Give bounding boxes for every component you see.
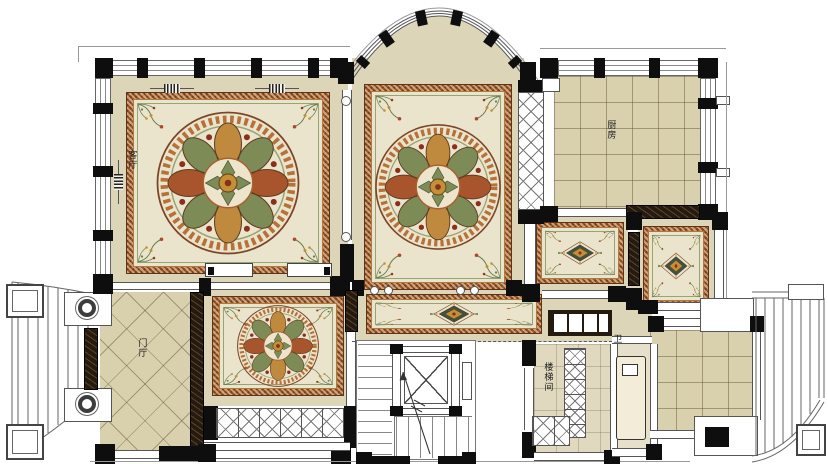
drawing-primitive [250, 355, 253, 358]
drawing-primitive [545, 265, 560, 275]
wall-segment [534, 452, 610, 461]
wall-segment [346, 332, 356, 408]
drawing-primitive [470, 313, 472, 315]
drawing-primitive [692, 294, 693, 296]
round-column-icon [78, 395, 96, 413]
window-post [93, 103, 113, 114]
drawing-primitive [388, 305, 391, 306]
column-base-icon [456, 286, 465, 295]
drawing-primitive [600, 265, 615, 275]
living-room-label: 客厅 [127, 150, 137, 170]
rug-field [133, 99, 323, 267]
stairwell-label: 楼梯间 [543, 362, 553, 392]
wall-post [93, 274, 113, 294]
drawing-primitive [545, 231, 550, 237]
wall-post [198, 444, 216, 462]
drawing-primitive [411, 406, 422, 412]
entry-floor [100, 292, 190, 450]
window-post [93, 166, 113, 177]
window-post [308, 58, 319, 78]
round-column-icon [78, 299, 96, 317]
drawing-primitive [658, 294, 659, 296]
floral-sprig-icon [504, 302, 534, 310]
drawing-primitive [145, 117, 148, 120]
dining-south-lattice-window [216, 408, 344, 438]
drawing-primitive [452, 312, 455, 315]
rear-landing [700, 298, 754, 332]
drawing-primitive [655, 243, 656, 245]
drawing-primitive [145, 246, 148, 249]
drawing-primitive [452, 225, 457, 230]
drawing-primitive [287, 318, 290, 321]
floral-sprig-icon [374, 250, 404, 280]
wall-post [712, 212, 728, 230]
threshold-marble [628, 232, 640, 286]
drawing-primitive [141, 255, 143, 257]
drawing-primitive [655, 287, 656, 289]
drawing-primitive [323, 373, 325, 375]
wall-segment [113, 282, 201, 290]
drawing-primitive [419, 144, 424, 149]
drawing-primitive [492, 264, 500, 278]
drawing-primitive [675, 254, 676, 256]
drawing-primitive [435, 184, 441, 190]
cabinet-end [208, 267, 214, 275]
drawing-primitive [383, 109, 386, 112]
eave-line [78, 46, 350, 47]
drawing-primitive [662, 248, 664, 250]
window-post [698, 98, 718, 109]
column-base-icon [384, 286, 393, 295]
bath-label: 卫 [612, 334, 622, 344]
drawing-primitive [304, 114, 307, 117]
closet-a-rug [536, 222, 624, 284]
drawing-primitive [657, 241, 658, 243]
drawing-primitive [475, 253, 479, 257]
drawing-primitive [287, 371, 290, 374]
wall-segment [558, 208, 628, 217]
drawing-primitive [383, 321, 386, 322]
drawing-primitive [474, 313, 478, 315]
drawing-primitive [138, 248, 146, 262]
column-base-icon [341, 232, 351, 242]
drawing-primitive [691, 265, 694, 267]
drawing-primitive [403, 372, 430, 454]
stairwell-floor-hatch [532, 416, 570, 446]
drawing-primitive [476, 201, 481, 206]
drawing-primitive [490, 262, 493, 265]
drawing-primitive [475, 117, 479, 121]
drawing-primitive [552, 235, 554, 236]
drawing-primitive [495, 271, 497, 273]
wall-post [462, 452, 476, 464]
drawing-primitive [327, 380, 329, 382]
drawing-primitive [308, 246, 311, 249]
wall-post [95, 58, 113, 78]
drawing-primitive [388, 106, 391, 109]
wall-segment [342, 90, 352, 240]
column-base-icon [370, 286, 379, 295]
drawing-primitive [453, 323, 455, 325]
eave-line [78, 46, 79, 62]
drawing-primitive [578, 251, 581, 254]
cabinet-symbol [205, 263, 253, 277]
wall-post [646, 444, 662, 460]
wall-post [518, 80, 544, 92]
drawing-primitive [231, 373, 233, 375]
wall-post [522, 284, 540, 302]
drawing-primitive [271, 199, 277, 205]
drawing-primitive [414, 400, 425, 406]
drawing-primitive [430, 313, 434, 315]
wall-post [648, 316, 664, 332]
floral-sprig-icon [472, 94, 502, 124]
kitchen-counter-symbol [542, 78, 560, 92]
drawing-primitive [600, 231, 615, 241]
drawing-primitive [696, 287, 697, 289]
drawing-primitive [398, 117, 402, 121]
entry-label: 门厅 [137, 338, 147, 358]
drawing-primitive [696, 243, 697, 245]
window-post [698, 162, 718, 173]
drawing-primitive [395, 168, 400, 173]
drawing-primitive [383, 262, 386, 265]
drawing-primitive [689, 248, 691, 250]
drawing-primitive [391, 99, 394, 102]
wall-segment [658, 302, 700, 311]
wall-segment [213, 450, 331, 459]
rear-pillar-base [694, 416, 758, 456]
wall-segment [340, 244, 354, 282]
drawing-primitive [545, 265, 560, 275]
wall-segment [714, 230, 724, 298]
drawing-primitive [600, 265, 615, 275]
drawing-primitive [486, 265, 489, 268]
drawing-primitive [483, 273, 486, 276]
kitchen-north-window [558, 60, 700, 76]
drawing-primitive [303, 333, 306, 336]
kitchen-floor [554, 76, 702, 208]
wall-post [522, 340, 536, 366]
cabinet-end [324, 267, 330, 275]
drawing-primitive [675, 276, 676, 278]
drawing-primitive [606, 235, 608, 236]
drawing-primitive [554, 273, 556, 274]
drawing-primitive [662, 265, 663, 267]
drawing-primitive [224, 308, 232, 319]
drawing-primitive [653, 238, 654, 239]
window-post [251, 58, 262, 78]
drawing-primitive [612, 233, 613, 234]
drawing-primitive [522, 321, 525, 322]
threshold-marble [345, 290, 358, 332]
floral-sprig-icon [472, 250, 502, 280]
drawing-primitive [250, 333, 253, 336]
living-room-rug [126, 92, 330, 274]
wall-segment [368, 456, 410, 464]
drawing-primitive [490, 109, 493, 112]
drawing-primitive [495, 100, 497, 102]
drawing-primitive [522, 306, 525, 307]
drawing-primitive [694, 241, 695, 243]
drawing-primitive [609, 231, 614, 237]
drawing-primitive [698, 293, 699, 294]
drawing-primitive [507, 319, 511, 320]
drawing-primitive [657, 289, 658, 291]
drawing-primitive [308, 117, 311, 120]
drawing-primitive [324, 308, 332, 319]
floral-sprig-icon [374, 318, 404, 326]
floral-sprig-icon [374, 94, 404, 124]
rug-field [541, 227, 619, 279]
wall-post [608, 286, 626, 302]
corridor-runner-rug [366, 294, 542, 334]
drawing-primitive [304, 249, 307, 252]
eave-line [540, 48, 726, 49]
drawing-primitive [595, 252, 597, 254]
drawing-primitive [398, 308, 402, 309]
drawing-primitive [398, 253, 402, 257]
window-post [594, 58, 605, 78]
drawing-primitive [391, 303, 394, 304]
diamond-medallion-icon [558, 240, 602, 266]
floral-sprig-icon [688, 280, 701, 298]
drawing-primitive [558, 252, 562, 254]
drawing-primitive [653, 293, 654, 294]
wall-post [540, 58, 558, 78]
drawing-primitive [379, 100, 381, 102]
drawing-primitive [675, 264, 678, 268]
drawing-primitive [391, 324, 394, 325]
dining-rug [212, 296, 344, 396]
wall-segment [542, 290, 608, 299]
wall-post [698, 58, 718, 78]
drawing-primitive [383, 306, 386, 307]
diamond-medallion-icon [430, 301, 478, 327]
eave-line [726, 62, 727, 302]
drawing-primitive [688, 265, 689, 267]
rug-field [371, 299, 537, 329]
kitchen-label: 厨房 [606, 120, 616, 140]
drawing-primitive [244, 134, 250, 140]
drawing-primitive [400, 372, 408, 381]
wall-post [540, 206, 558, 222]
drawing-primitive [244, 226, 250, 232]
window-post [93, 230, 113, 241]
pillar-core [705, 427, 729, 447]
drawing-primitive [515, 303, 518, 304]
column-base-icon [470, 286, 479, 295]
drawing-primitive [276, 344, 280, 348]
drawing-primitive [379, 304, 381, 305]
rear-room-floor [650, 330, 756, 430]
closet-b-rug [643, 226, 709, 306]
floral-sprig-icon [504, 318, 534, 326]
drawing-primitive [527, 304, 529, 305]
window-sill [716, 96, 730, 105]
drawing-primitive [310, 248, 318, 262]
drawing-primitive [652, 235, 656, 244]
floor-plan-canvas: 客厅 厨房 门厅 楼梯间 卫 [0, 0, 828, 464]
drawing-primitive [658, 237, 659, 239]
drawing-primitive [579, 262, 581, 264]
east-pillar-south [796, 424, 826, 456]
floral-sprig-icon [651, 234, 664, 252]
drawing-primitive [515, 324, 518, 325]
drawing-primitive [486, 106, 489, 109]
window-sill [716, 168, 730, 177]
rug-field [648, 231, 704, 301]
west-pillar-south [6, 424, 44, 460]
drawing-primitive [327, 311, 329, 313]
drawing-primitive [600, 231, 615, 241]
drawing-primitive [658, 265, 661, 267]
drawing-primitive [698, 238, 699, 239]
drawing-primitive [271, 161, 277, 167]
wall-post [626, 212, 642, 230]
drawing-primitive [476, 168, 481, 173]
drawing-primitive [376, 264, 384, 278]
west-pillar-north [6, 284, 44, 318]
drawing-primitive [265, 318, 268, 321]
drawing-primitive [388, 265, 391, 268]
drawing-primitive [313, 255, 315, 257]
hall-rug [364, 84, 512, 290]
west-threshold-marble [84, 328, 98, 390]
drawing-primitive [598, 252, 602, 254]
drawing-primitive [379, 324, 381, 325]
hall-east-lattice-screen [518, 92, 544, 210]
drawing-primitive [518, 305, 521, 306]
drawing-primitive [452, 144, 457, 149]
wall-segment [204, 442, 350, 451]
drawing-primitive [303, 355, 306, 358]
drawing-primitive [689, 282, 691, 284]
drawing-primitive [310, 104, 318, 118]
drawing-primitive [313, 108, 315, 110]
drawing-primitive [179, 161, 185, 167]
arched-bay-window [338, 0, 540, 82]
drawing-primitive [652, 288, 656, 297]
drawing-primitive [693, 235, 700, 237]
rug-field [219, 303, 337, 389]
wall-segment [115, 450, 159, 459]
drawing-primitive [206, 134, 212, 140]
drawing-primitive [379, 271, 381, 273]
drawing-primitive [547, 233, 548, 234]
arch-base-pier [338, 62, 354, 84]
wall-segment [650, 430, 694, 439]
column-base-icon [341, 96, 351, 106]
wall-post [638, 300, 658, 314]
wall-segment [664, 318, 700, 327]
drawing-primitive [507, 308, 511, 309]
window-post [194, 58, 205, 78]
drawing-primitive [547, 272, 548, 273]
drawing-primitive [419, 225, 424, 230]
drawing-primitive [265, 371, 268, 374]
wall-post [506, 280, 522, 296]
drawing-primitive [324, 374, 332, 385]
drawing-primitive [323, 317, 325, 319]
wall-segment [211, 282, 331, 290]
drawing-primitive [692, 237, 693, 239]
drawing-primitive [527, 324, 529, 325]
entry-threshold-marble [190, 292, 204, 454]
drawing-primitive [696, 288, 700, 297]
wall-segment [524, 224, 536, 286]
drawing-primitive [391, 273, 394, 276]
drawing-primitive [563, 252, 565, 254]
drawing-primitive [206, 226, 212, 232]
drawing-primitive [395, 201, 400, 206]
drawing-primitive [492, 96, 500, 110]
window-post [649, 58, 660, 78]
east-pillar-north [788, 284, 824, 300]
diamond-medallion-icon [658, 251, 694, 281]
floral-sprig-icon [688, 234, 701, 252]
rug-field [371, 91, 505, 283]
drawing-primitive [141, 108, 143, 110]
floral-sprig-icon [651, 280, 664, 298]
circular-medallion-icon [235, 303, 321, 389]
drawing-primitive [436, 313, 438, 315]
drawing-primitive [453, 304, 455, 306]
stair-direction-arrow [356, 340, 476, 460]
drawing-primitive [579, 243, 581, 245]
drawing-primitive [138, 104, 146, 118]
drawing-primitive [483, 99, 486, 102]
circular-medallion-icon [372, 121, 504, 253]
drawing-primitive [179, 199, 185, 205]
drawing-primitive [662, 282, 664, 284]
drawing-primitive [524, 303, 532, 307]
cabinet-symbol [287, 263, 332, 277]
drawing-primitive [227, 311, 229, 313]
curtain-symbol [150, 84, 194, 93]
corridor-cabinet [548, 310, 612, 336]
curtain-symbol [255, 84, 299, 93]
circular-medallion-icon [153, 108, 303, 258]
drawing-primitive [227, 380, 229, 382]
drawing-primitive [550, 237, 552, 238]
drawing-primitive [612, 272, 613, 273]
drawing-primitive [398, 319, 402, 320]
drawing-primitive [231, 317, 233, 319]
drawing-primitive [376, 96, 384, 110]
fixture-control [622, 364, 638, 376]
floral-sprig-icon [374, 302, 404, 310]
drawing-primitive [554, 232, 556, 233]
drawing-primitive [225, 180, 232, 187]
curtain-symbol [114, 160, 123, 204]
drawing-primitive [376, 303, 384, 307]
window-post [137, 58, 148, 78]
